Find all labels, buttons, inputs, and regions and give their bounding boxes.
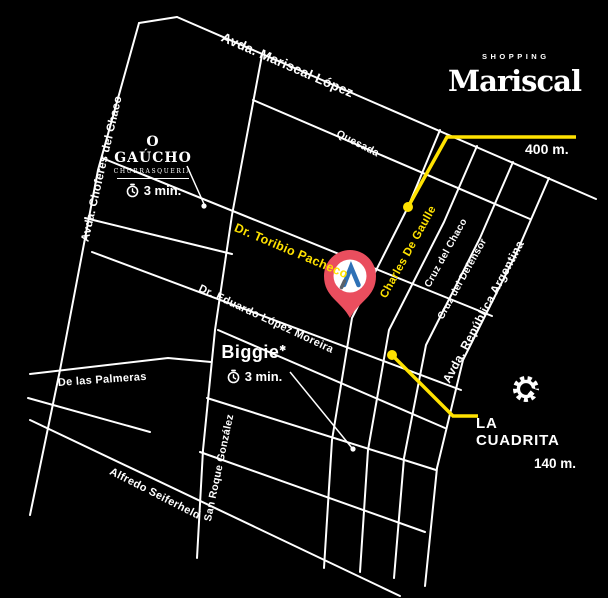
shopping-mariscal-distance: 400 m. [525, 141, 569, 157]
poi-la-cuadrita: LA CUADRITA 140 m. [476, 372, 580, 471]
street-mid-block-3 [200, 452, 425, 532]
la-cuadrita-wordmark: LA CUADRITA [476, 415, 580, 449]
poi-o-gaucho: O GAÚCHO CHURRASQUERIA 3 min. [108, 134, 198, 198]
clock-icon [125, 183, 140, 198]
street-left-block [85, 218, 232, 254]
shopping-mariscal-wordmark: Mariscal [448, 64, 580, 98]
gear-c-icon [508, 372, 544, 406]
o-gaucho-leader-dot [201, 203, 206, 208]
poi-biggie: Biggie✱ 3 min. [206, 342, 302, 384]
biggie-time-badge: 3 min. [206, 369, 302, 384]
la-cuadrita-connector [392, 355, 478, 416]
o-gaucho-rule [117, 178, 189, 179]
biggie-time: 3 min. [245, 369, 283, 384]
o-gaucho-logo: O GAÚCHO [108, 134, 198, 166]
street-top-edge [139, 17, 177, 23]
o-gaucho-time-badge: 3 min. [108, 183, 198, 198]
shopping-mariscal-wordmark-top: SHOPPING [448, 52, 580, 61]
leader-lines [187, 166, 356, 452]
o-gaucho-time: 3 min. [144, 183, 182, 198]
street-quesada [253, 100, 530, 219]
biggie-logo: Biggie✱ [206, 342, 302, 363]
la-cuadrita-dot [387, 350, 397, 360]
la-cuadrita-distance: 140 m. [476, 456, 580, 471]
o-gaucho-subtitle: CHURRASQUERIA [108, 168, 198, 175]
biggie-star-icon: ✱ [279, 344, 286, 353]
map-canvas: Avda. Mariscal López Avda. Choferes del … [0, 0, 608, 598]
clock-icon [226, 369, 241, 384]
poi-shopping-mariscal: SHOPPING Mariscal [448, 52, 580, 98]
biggie-leader-dot [350, 446, 355, 451]
shopping-mariscal-dot [403, 202, 413, 212]
